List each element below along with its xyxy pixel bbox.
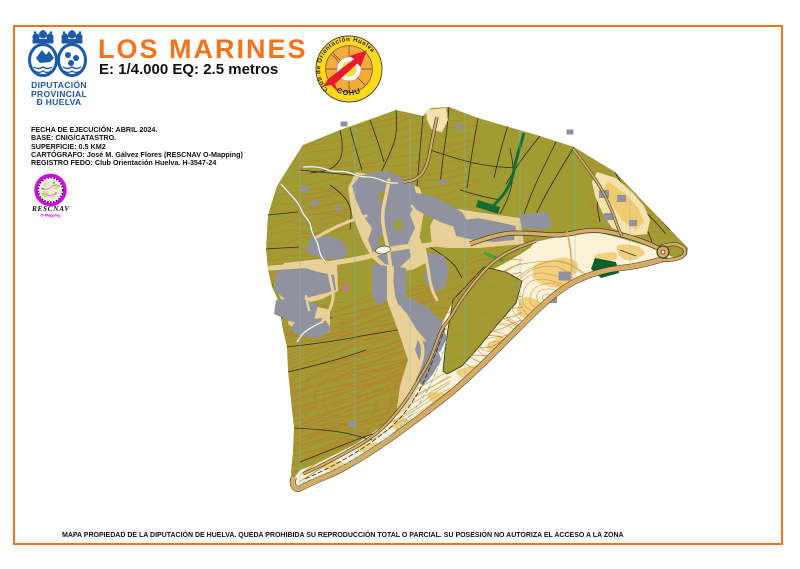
svg-text:O-Mapping: O-Mapping (41, 214, 62, 218)
svg-text:RESCNAV: RESCNAV (31, 205, 70, 213)
